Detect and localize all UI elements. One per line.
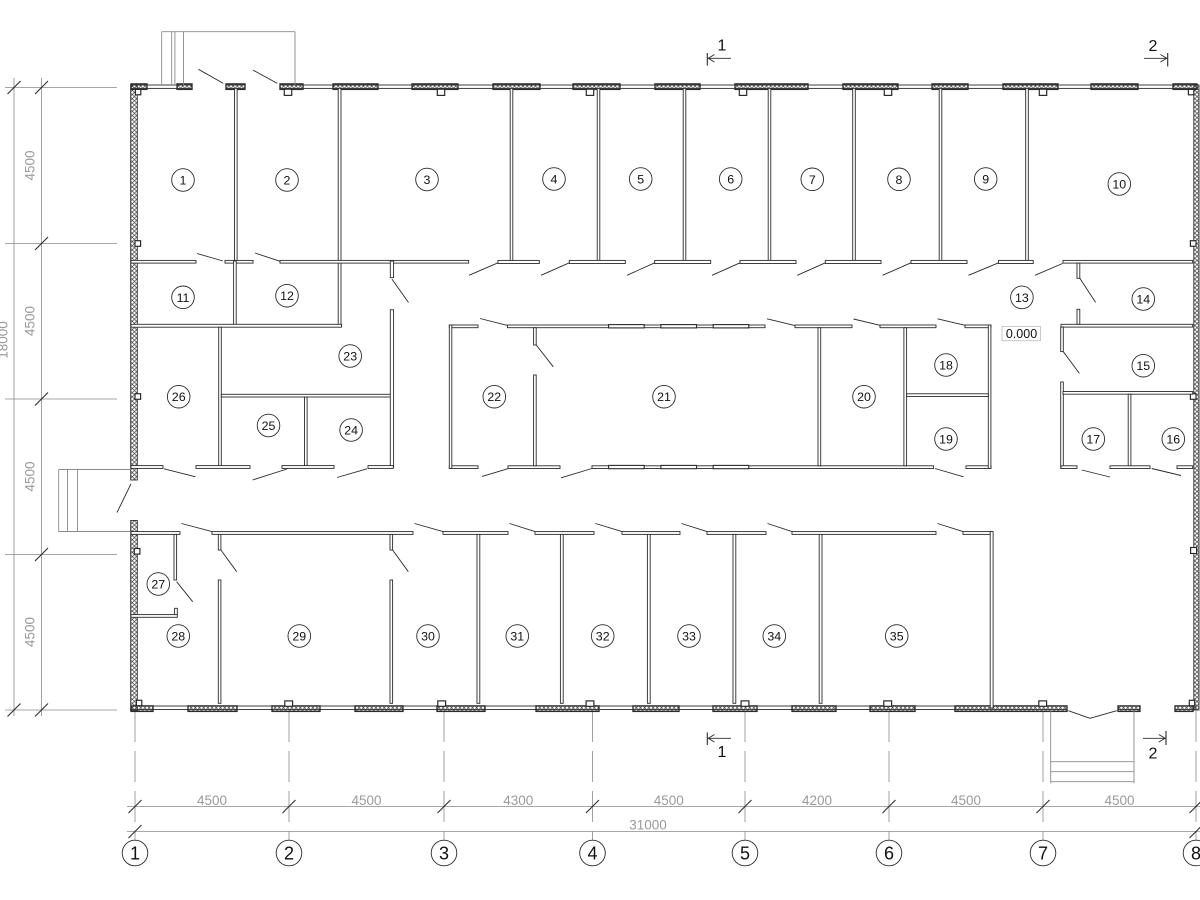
svg-text:1: 1 (130, 843, 140, 863)
svg-text:15: 15 (1136, 359, 1150, 373)
svg-text:4500: 4500 (351, 793, 381, 808)
svg-text:11: 11 (177, 291, 190, 305)
svg-text:2: 2 (1149, 38, 1158, 55)
svg-text:4: 4 (551, 172, 558, 186)
svg-text:17: 17 (1086, 432, 1100, 446)
svg-text:23: 23 (343, 349, 357, 363)
svg-text:12: 12 (280, 289, 294, 303)
svg-text:1: 1 (180, 173, 187, 187)
svg-text:4500: 4500 (951, 793, 981, 808)
svg-text:21: 21 (657, 390, 671, 404)
svg-text:14: 14 (1136, 292, 1150, 306)
svg-text:5: 5 (740, 843, 750, 863)
svg-text:10: 10 (1112, 177, 1126, 191)
svg-text:3: 3 (424, 173, 431, 187)
svg-text:6: 6 (884, 843, 894, 863)
svg-text:31000: 31000 (629, 818, 667, 833)
svg-text:22: 22 (487, 390, 501, 404)
svg-text:4500: 4500 (23, 617, 38, 647)
svg-text:4300: 4300 (503, 793, 533, 808)
svg-text:0.000: 0.000 (1006, 327, 1037, 341)
svg-text:4: 4 (587, 843, 597, 863)
svg-text:8: 8 (1191, 843, 1200, 863)
svg-text:33: 33 (682, 629, 696, 643)
svg-text:9: 9 (982, 172, 989, 186)
svg-text:4500: 4500 (23, 150, 38, 180)
svg-text:7: 7 (809, 173, 816, 187)
svg-text:1: 1 (718, 38, 727, 55)
svg-text:6: 6 (727, 172, 734, 186)
svg-text:4500: 4500 (1104, 793, 1134, 808)
svg-text:8: 8 (896, 173, 903, 187)
svg-text:31: 31 (510, 629, 524, 643)
svg-text:28: 28 (171, 629, 185, 643)
svg-text:32: 32 (596, 629, 610, 643)
svg-text:1: 1 (718, 744, 727, 761)
svg-text:4500: 4500 (654, 793, 684, 808)
svg-text:34: 34 (767, 629, 781, 643)
svg-text:16: 16 (1166, 432, 1180, 446)
svg-text:20: 20 (857, 390, 871, 404)
svg-text:18: 18 (939, 358, 953, 372)
svg-text:4500: 4500 (23, 461, 38, 491)
svg-text:2: 2 (1149, 746, 1158, 763)
svg-text:5: 5 (637, 172, 644, 186)
svg-text:2: 2 (284, 843, 294, 863)
svg-text:35: 35 (890, 629, 904, 643)
svg-text:2: 2 (284, 173, 291, 187)
svg-text:30: 30 (421, 629, 435, 643)
svg-text:3: 3 (439, 843, 449, 863)
svg-text:4500: 4500 (197, 793, 227, 808)
svg-text:13: 13 (1015, 291, 1029, 305)
svg-text:18000: 18000 (0, 321, 11, 359)
svg-text:4200: 4200 (802, 793, 832, 808)
svg-text:7: 7 (1038, 843, 1048, 863)
svg-text:19: 19 (939, 432, 953, 446)
svg-text:25: 25 (262, 419, 276, 433)
svg-text:24: 24 (344, 423, 358, 437)
svg-text:27: 27 (151, 577, 165, 591)
svg-text:4500: 4500 (23, 306, 38, 336)
svg-text:26: 26 (172, 390, 186, 404)
svg-text:29: 29 (292, 629, 306, 643)
